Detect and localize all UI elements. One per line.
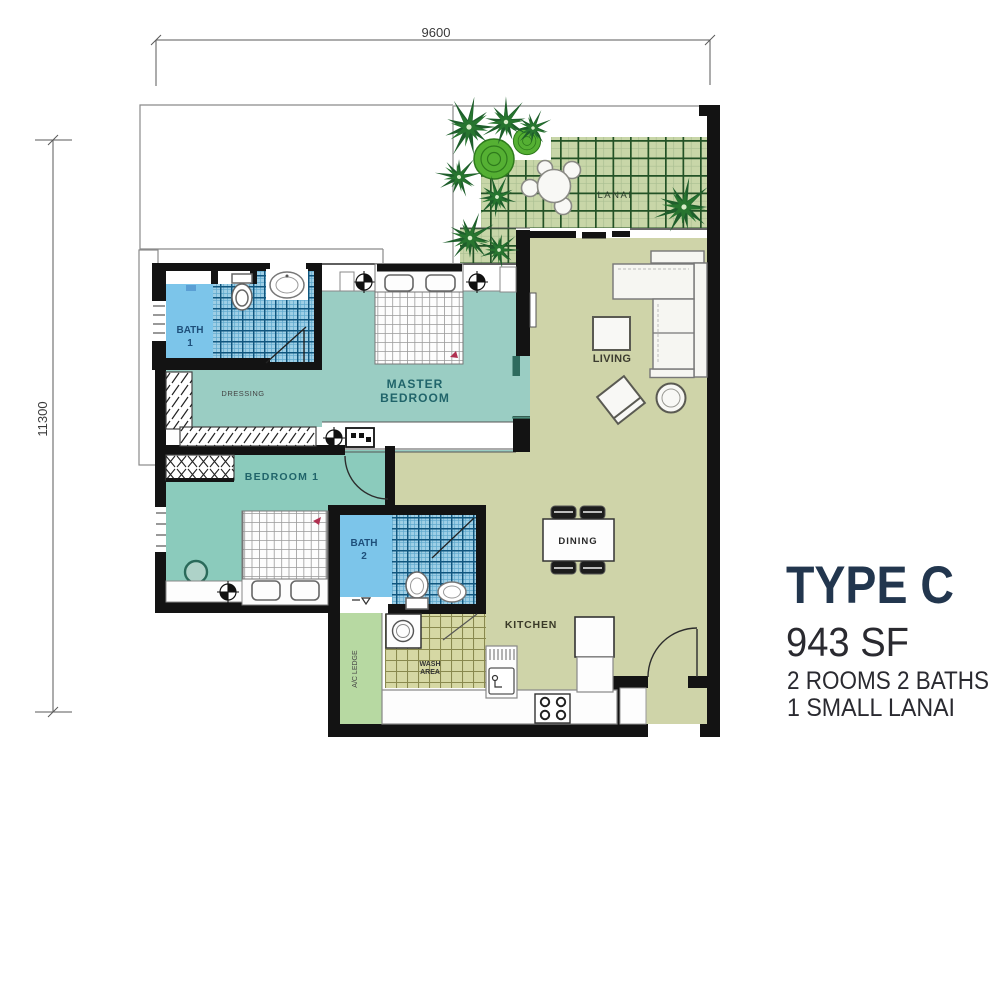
svg-text:BATH: BATH	[350, 538, 377, 549]
svg-text:LIVING: LIVING	[593, 353, 631, 365]
svg-text:BATH: BATH	[176, 325, 203, 336]
svg-text:AREA: AREA	[420, 669, 440, 676]
svg-text:9600: 9600	[422, 25, 451, 40]
svg-text:DINING: DINING	[558, 536, 597, 547]
svg-text:1 SMALL LANAI: 1 SMALL LANAI	[787, 694, 955, 722]
svg-text:2 ROOMS 2 BATHS: 2 ROOMS 2 BATHS	[787, 667, 989, 695]
svg-text:BEDROOM: BEDROOM	[380, 391, 450, 405]
svg-text:WASH: WASH	[420, 661, 441, 668]
svg-text:1: 1	[187, 338, 193, 349]
svg-text:2: 2	[361, 551, 367, 562]
svg-text:11300: 11300	[35, 401, 50, 436]
svg-text:943 SF: 943 SF	[786, 619, 909, 665]
svg-text:A/C LEDGE: A/C LEDGE	[352, 650, 359, 688]
svg-text:TYPE C: TYPE C	[786, 556, 954, 615]
svg-text:LANAI: LANAI	[598, 190, 633, 201]
svg-text:BEDROOM 1: BEDROOM 1	[245, 471, 319, 483]
svg-text:DRESSING: DRESSING	[221, 389, 264, 398]
svg-text:KITCHEN: KITCHEN	[505, 619, 557, 631]
svg-text:MASTER: MASTER	[387, 377, 444, 391]
